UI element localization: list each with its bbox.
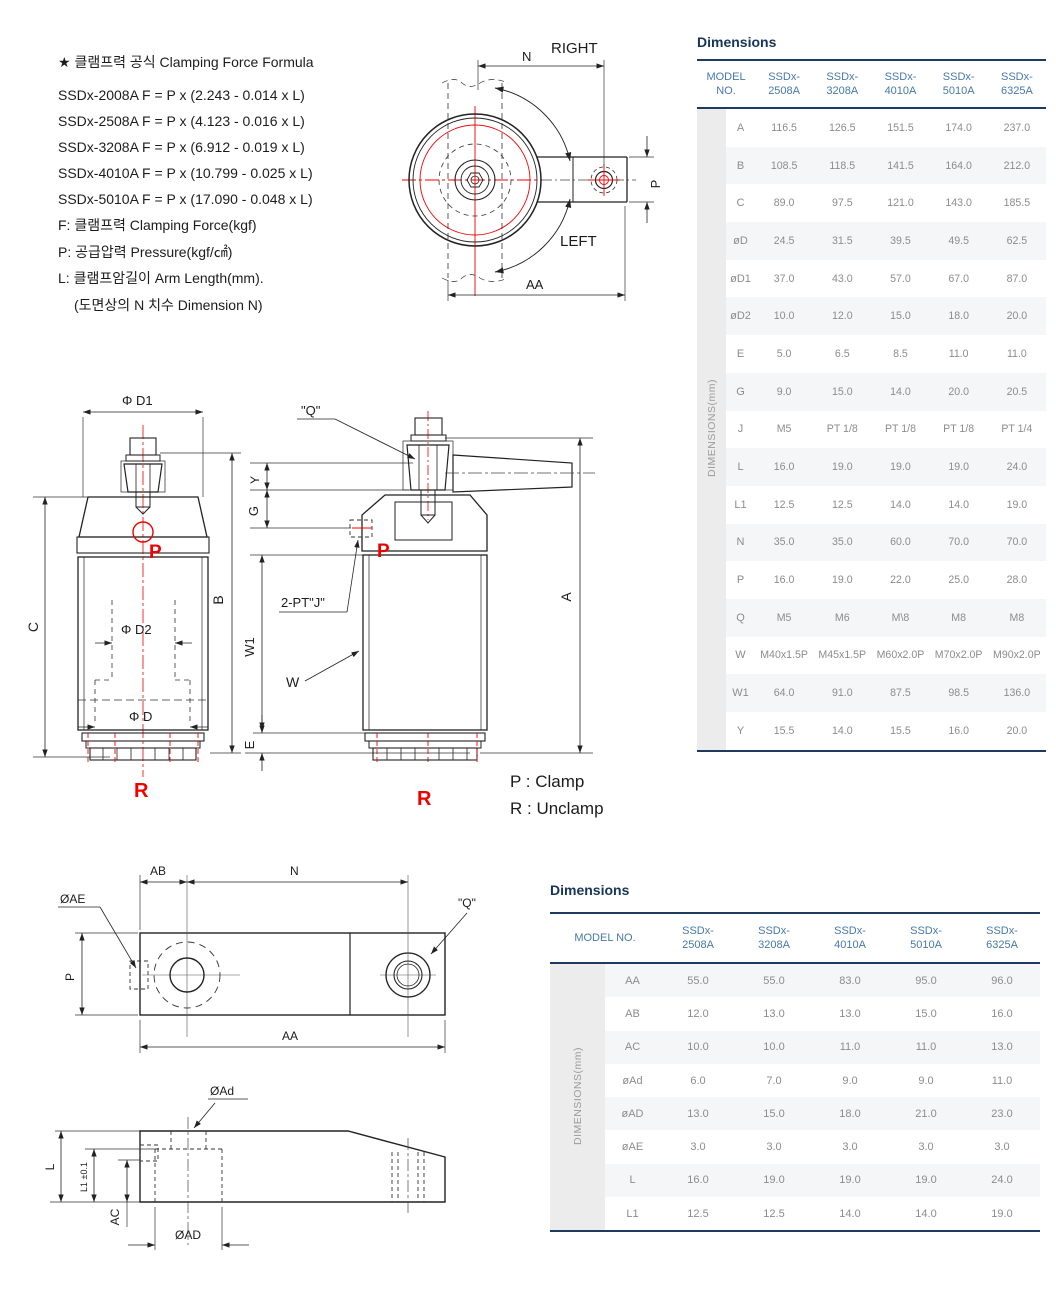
dim-value: 16.0 xyxy=(964,997,1040,1030)
dimensions-table: MODEL NO. SSDx-2508ASSDx-3208ASSDx-4010A… xyxy=(697,59,1046,752)
dim-value: 12.5 xyxy=(736,1197,812,1231)
table-row: øAd6.07.09.09.011.0 xyxy=(550,1064,1040,1097)
dim-row-label: øD xyxy=(726,222,755,260)
dim-value: 64.0 xyxy=(755,674,813,712)
dim-value: 8.5 xyxy=(871,335,929,373)
dim-label-a: A xyxy=(558,592,574,602)
dim-value: 24.0 xyxy=(964,1164,1040,1197)
dim-value: 57.0 xyxy=(871,260,929,298)
dim-value: 11.0 xyxy=(988,335,1046,373)
dim-value: 18.0 xyxy=(812,1097,888,1130)
dim-value: 11.0 xyxy=(812,1031,888,1064)
dim-row-label: G xyxy=(726,373,755,411)
dim-value: 91.0 xyxy=(813,674,871,712)
dim-label-n: N xyxy=(522,49,531,64)
label-right: RIGHT xyxy=(551,40,598,57)
dim-value: 108.5 xyxy=(755,147,813,185)
dim-label-l1: L1 ±0.1 xyxy=(79,1162,89,1192)
table-row: øAE3.03.03.03.03.0 xyxy=(550,1130,1040,1163)
port-label-p2: P xyxy=(377,541,390,562)
dim-value: 185.5 xyxy=(988,184,1046,222)
dim-value: 12.5 xyxy=(813,486,871,524)
table-row: øD24.531.539.549.562.5 xyxy=(697,222,1046,260)
dim-value: 62.5 xyxy=(988,222,1046,260)
table-row: N35.035.060.070.070.0 xyxy=(697,524,1046,562)
port-label-r: R xyxy=(134,780,149,802)
formula-line: SSDx-3208A F = P x (6.912 - 0.019 x L) xyxy=(58,134,408,160)
table-row: AC10.010.011.011.013.0 xyxy=(550,1031,1040,1064)
dim-value: 9.0 xyxy=(755,373,813,411)
dim-value: 87.0 xyxy=(988,260,1046,298)
dim-value: 55.0 xyxy=(736,963,812,997)
dim-value: 35.0 xyxy=(813,524,871,562)
dim-value: 13.0 xyxy=(812,997,888,1030)
table-row: W164.091.087.598.5136.0 xyxy=(697,674,1046,712)
dim-row-label: AA xyxy=(605,963,660,997)
catalog-page: ★ 클램프력 공식 Clamping Force Formula SSDx-20… xyxy=(0,0,1056,1300)
dim-value: 19.0 xyxy=(888,1164,964,1197)
dim-value: M60x2.0P xyxy=(871,637,929,675)
dim-value: 5.0 xyxy=(755,335,813,373)
dim-value: 14.0 xyxy=(888,1197,964,1231)
dim-row-label: L xyxy=(605,1164,660,1197)
dim-value: 118.5 xyxy=(813,147,871,185)
dim-value: 12.5 xyxy=(755,486,813,524)
dim-value: 15.0 xyxy=(871,297,929,335)
dim-value: 20.0 xyxy=(988,712,1046,751)
front-views-drawing: Φ D1 P Φ D2 Φ D xyxy=(25,385,640,830)
dim-label-phi-d1: Φ D1 xyxy=(122,393,153,408)
dim-value: 28.0 xyxy=(988,561,1046,599)
dim-value: 10.0 xyxy=(755,297,813,335)
dim-value: 95.0 xyxy=(888,963,964,997)
dim-value: 9.0 xyxy=(812,1064,888,1097)
model-header: SSDx-5010A xyxy=(930,60,988,108)
dim-label-aa: AA xyxy=(526,277,544,292)
dim-row-label: øAE xyxy=(605,1130,660,1163)
dim-value: M\8 xyxy=(871,599,929,637)
dim-value: 49.5 xyxy=(930,222,988,260)
dim-value: PT 1/8 xyxy=(871,411,929,449)
dim-value: 143.0 xyxy=(930,184,988,222)
dim-value: 11.0 xyxy=(888,1031,964,1064)
table-header-row: MODEL NO. SSDx-2508ASSDx-3208ASSDx-4010A… xyxy=(697,60,1046,108)
dim-value: 19.0 xyxy=(736,1164,812,1197)
dim-value: PT 1/4 xyxy=(988,411,1046,449)
table-row: øD137.043.057.067.087.0 xyxy=(697,260,1046,298)
dim-value: 23.0 xyxy=(964,1097,1040,1130)
dim-row-label: C xyxy=(726,184,755,222)
dim-value: 15.0 xyxy=(736,1097,812,1130)
dim-value: M5 xyxy=(755,411,813,449)
dim-value: 13.0 xyxy=(964,1031,1040,1064)
dim-value: 43.0 xyxy=(813,260,871,298)
table-title: Dimensions xyxy=(550,882,1040,898)
table-row: Y15.514.015.516.020.0 xyxy=(697,712,1046,751)
dim-value: M8 xyxy=(988,599,1046,637)
model-header: SSDx-2508A xyxy=(660,913,736,963)
clamp-arm-outline xyxy=(453,455,572,492)
dim-row-label: P xyxy=(726,561,755,599)
table-row: QM5M6M\8M8M8 xyxy=(697,599,1046,637)
dim-value: 14.0 xyxy=(871,486,929,524)
arm-views-drawing: AB N ØAE P AA "Q" ØAd xyxy=(30,855,530,1300)
dim-value: 19.0 xyxy=(964,1197,1040,1231)
dim-value: 7.0 xyxy=(736,1064,812,1097)
dimensions-table-2: Dimensions MODEL NO. SSDx-2508ASSDx-3208… xyxy=(550,882,1040,1232)
dim-value: 16.0 xyxy=(660,1164,736,1197)
table-row: L112.512.514.014.019.0 xyxy=(697,486,1046,524)
model-header: SSDx-6325A xyxy=(988,60,1046,108)
dim-row-label: W1 xyxy=(726,674,755,712)
formula-title: ★ 클램프력 공식 Clamping Force Formula xyxy=(58,52,408,72)
dim-value: 20.0 xyxy=(930,373,988,411)
dim-value: 87.5 xyxy=(871,674,929,712)
formula-note: F: 클램프력 Clamping Force(kgf) xyxy=(58,212,408,239)
model-header: SSDx-4010A xyxy=(871,60,929,108)
dim-row-label: J xyxy=(726,411,755,449)
legend-clamp: P : Clamp xyxy=(510,772,584,791)
dim-value: 116.5 xyxy=(755,108,813,147)
model-header: SSDx-3208A xyxy=(813,60,871,108)
dim-value: 151.5 xyxy=(871,108,929,147)
dim-row-label: B xyxy=(726,147,755,185)
dim-value: 15.0 xyxy=(888,997,964,1030)
dim-row-label: E xyxy=(726,335,755,373)
model-header: SSDx-5010A xyxy=(888,913,964,963)
dim-label-ad: ØAD xyxy=(175,1228,201,1242)
dim-label-p2: P xyxy=(63,973,77,981)
dim-value: 19.0 xyxy=(813,448,871,486)
dim-value: M6 xyxy=(813,599,871,637)
dim-value: 19.0 xyxy=(871,448,929,486)
dim-value: 39.5 xyxy=(871,222,929,260)
dim-row-label: L xyxy=(726,448,755,486)
dim-value: 10.0 xyxy=(736,1031,812,1064)
dim-value: 18.0 xyxy=(930,297,988,335)
dim-value: 12.0 xyxy=(813,297,871,335)
dim-value: 11.0 xyxy=(930,335,988,373)
table-row: JM5PT 1/8PT 1/8PT 1/8PT 1/4 xyxy=(697,411,1046,449)
table-row: L16.019.019.019.024.0 xyxy=(550,1164,1040,1197)
dim-value: 3.0 xyxy=(964,1130,1040,1163)
dim-value: 13.0 xyxy=(660,1097,736,1130)
clamping-force-formula-block: ★ 클램프력 공식 Clamping Force Formula SSDx-20… xyxy=(58,52,408,318)
dim-value: M45x1.5P xyxy=(813,637,871,675)
dim-value: 126.5 xyxy=(813,108,871,147)
top-view-drawing: N RIGHT AA P LEFT xyxy=(400,28,690,328)
dim-label-ab: AB xyxy=(150,864,166,878)
dim-value: 16.0 xyxy=(755,448,813,486)
dim-value: 15.5 xyxy=(871,712,929,751)
dim-label-aa2: AA xyxy=(282,1029,298,1043)
formula-note: P: 공급압력 Pressure(kgf/㎠) xyxy=(58,239,408,266)
dim-value: 21.0 xyxy=(888,1097,964,1130)
dim-row-label: øAd xyxy=(605,1064,660,1097)
dim-label-phi-d2: Φ D2 xyxy=(121,622,152,637)
dim-value: 70.0 xyxy=(930,524,988,562)
dim-row-label: L1 xyxy=(605,1197,660,1231)
dim-value: 3.0 xyxy=(736,1130,812,1163)
table-title: Dimensions xyxy=(697,34,1046,50)
dim-value: 136.0 xyxy=(988,674,1046,712)
table-row: DIMENSIONS(mm)AA55.055.083.095.096.0 xyxy=(550,963,1040,997)
table-row: L16.019.019.019.024.0 xyxy=(697,448,1046,486)
dim-value: PT 1/8 xyxy=(930,411,988,449)
dim-value: 60.0 xyxy=(871,524,929,562)
dim-value: 19.0 xyxy=(988,486,1046,524)
units-side-label: DIMENSIONS(mm) xyxy=(697,108,726,751)
model-header: SSDx-3208A xyxy=(736,913,812,963)
dim-value: 6.0 xyxy=(660,1064,736,1097)
dim-value: 121.0 xyxy=(871,184,929,222)
dim-row-label: Q xyxy=(726,599,755,637)
legend-unclamp: R : Unclamp xyxy=(510,799,604,818)
formula-line: SSDx-2008A F = P x (2.243 - 0.014 x L) xyxy=(58,82,408,108)
dim-value: 67.0 xyxy=(930,260,988,298)
formula-note: (도면상의 N 치수 Dimension N) xyxy=(58,292,408,319)
dim-value: 16.0 xyxy=(755,561,813,599)
dimensions-table: MODEL NO. SSDx-2508ASSDx-3208ASSDx-4010A… xyxy=(550,912,1040,1232)
dim-value: M90x2.0P xyxy=(988,637,1046,675)
model-header: SSDx-6325A xyxy=(964,913,1040,963)
dim-value: 96.0 xyxy=(964,963,1040,997)
table-row: øD210.012.015.018.020.0 xyxy=(697,297,1046,335)
table-row: P16.019.022.025.028.0 xyxy=(697,561,1046,599)
dim-value: 19.0 xyxy=(813,561,871,599)
dim-value: 3.0 xyxy=(812,1130,888,1163)
dim-value: 237.0 xyxy=(988,108,1046,147)
dim-label-n2: N xyxy=(290,864,299,878)
dim-row-label: øAD xyxy=(605,1097,660,1130)
dim-label-pt-j: 2-PT"J" xyxy=(281,595,325,610)
dim-value: 164.0 xyxy=(930,147,988,185)
label-left: LEFT xyxy=(560,233,597,250)
dim-label-w: W xyxy=(286,674,300,690)
dim-value: 6.5 xyxy=(813,335,871,373)
arm-top-outline xyxy=(140,933,445,1015)
table-header-row: MODEL NO. SSDx-2508ASSDx-3208ASSDx-4010A… xyxy=(550,913,1040,963)
dim-label-q: "Q" xyxy=(301,403,321,418)
dim-label-q2: "Q" xyxy=(458,896,476,910)
dim-label-b: B xyxy=(210,595,226,604)
port-label-r2: R xyxy=(417,788,432,810)
dim-value: M5 xyxy=(755,599,813,637)
dim-value: 20.0 xyxy=(988,297,1046,335)
dim-value: M70x2.0P xyxy=(930,637,988,675)
table-row: WM40x1.5PM45x1.5PM60x2.0PM70x2.0PM90x2.0… xyxy=(697,637,1046,675)
dim-value: 16.0 xyxy=(930,712,988,751)
table-row: G9.015.014.020.020.5 xyxy=(697,373,1046,411)
dim-value: 3.0 xyxy=(660,1130,736,1163)
dim-value: 141.5 xyxy=(871,147,929,185)
table-row: C89.097.5121.0143.0185.5 xyxy=(697,184,1046,222)
dim-value: 20.5 xyxy=(988,373,1046,411)
dim-value: 3.0 xyxy=(888,1130,964,1163)
dim-value: 25.0 xyxy=(930,561,988,599)
dim-label-e: E xyxy=(242,740,257,749)
model-no-header: MODEL NO. xyxy=(550,913,660,963)
dim-value: M40x1.5P xyxy=(755,637,813,675)
model-header: SSDx-4010A xyxy=(812,913,888,963)
dim-value: 12.5 xyxy=(660,1197,736,1231)
dim-value: PT 1/8 xyxy=(813,411,871,449)
dim-value: 55.0 xyxy=(660,963,736,997)
dim-row-label: A xyxy=(726,108,755,147)
dim-label-ac: AC xyxy=(108,1208,122,1225)
dim-value: 212.0 xyxy=(988,147,1046,185)
table-row: AB12.013.013.015.016.0 xyxy=(550,997,1040,1030)
dimensions-table-1: Dimensions MODEL NO. SSDx-2508ASSDx-3208… xyxy=(697,34,1046,752)
dim-value: 89.0 xyxy=(755,184,813,222)
dim-value: 15.0 xyxy=(813,373,871,411)
dim-value: 14.0 xyxy=(930,486,988,524)
dim-label-ad-small: ØAd xyxy=(210,1084,234,1098)
dim-value: 15.5 xyxy=(755,712,813,751)
port-label-p: P xyxy=(149,542,162,563)
dim-value: 19.0 xyxy=(812,1164,888,1197)
dim-label-g: G xyxy=(246,506,261,516)
units-side-label: DIMENSIONS(mm) xyxy=(550,963,605,1231)
dim-label-ae: ØAE xyxy=(60,892,85,906)
formula-line: SSDx-4010A F = P x (10.799 - 0.025 x L) xyxy=(58,160,408,186)
table-row: L112.512.514.014.019.0 xyxy=(550,1197,1040,1231)
dim-value: 31.5 xyxy=(813,222,871,260)
dim-label-y: Y xyxy=(248,476,262,484)
dim-row-label: N xyxy=(726,524,755,562)
arm-side-outline xyxy=(140,1131,445,1202)
dim-value: 9.0 xyxy=(888,1064,964,1097)
dim-value: 174.0 xyxy=(930,108,988,147)
formula-line: SSDx-5010A F = P x (17.090 - 0.048 x L) xyxy=(58,186,408,212)
model-no-header: MODEL NO. xyxy=(697,60,755,108)
table-row: B108.5118.5141.5164.0212.0 xyxy=(697,147,1046,185)
dim-value: 24.0 xyxy=(988,448,1046,486)
dim-value: 11.0 xyxy=(964,1064,1040,1097)
dim-value: 22.0 xyxy=(871,561,929,599)
dim-value: 14.0 xyxy=(871,373,929,411)
table-row: E5.06.58.511.011.0 xyxy=(697,335,1046,373)
table-row: øAD13.015.018.021.023.0 xyxy=(550,1097,1040,1130)
dim-value: M8 xyxy=(930,599,988,637)
dim-row-label: AC xyxy=(605,1031,660,1064)
dim-row-label: AB xyxy=(605,997,660,1030)
dim-row-label: W xyxy=(726,637,755,675)
dim-value: 14.0 xyxy=(813,712,871,751)
dim-label-p: P xyxy=(648,180,663,189)
dim-value: 14.0 xyxy=(812,1197,888,1231)
model-header: SSDx-2508A xyxy=(755,60,813,108)
dim-value: 70.0 xyxy=(988,524,1046,562)
dim-value: 37.0 xyxy=(755,260,813,298)
dim-row-label: øD1 xyxy=(726,260,755,298)
dim-value: 83.0 xyxy=(812,963,888,997)
dim-value: 19.0 xyxy=(930,448,988,486)
dim-row-label: L1 xyxy=(726,486,755,524)
formula-line: SSDx-2508A F = P x (4.123 - 0.016 x L) xyxy=(58,108,408,134)
table-row: DIMENSIONS(mm)A116.5126.5151.5174.0237.0 xyxy=(697,108,1046,147)
formula-note: L: 클램프암길이 Arm Length(mm). xyxy=(58,265,408,292)
dim-value: 24.5 xyxy=(755,222,813,260)
dim-label-w1: W1 xyxy=(242,637,257,657)
dim-value: 97.5 xyxy=(813,184,871,222)
dim-value: 35.0 xyxy=(755,524,813,562)
dim-label-phi-d: Φ D xyxy=(129,709,152,724)
dim-value: 13.0 xyxy=(736,997,812,1030)
dim-label-l: L xyxy=(43,1163,57,1170)
dim-value: 98.5 xyxy=(930,674,988,712)
dim-row-label: øD2 xyxy=(726,297,755,335)
dim-value: 12.0 xyxy=(660,997,736,1030)
dim-value: 10.0 xyxy=(660,1031,736,1064)
dim-label-c: C xyxy=(25,622,41,632)
dim-row-label: Y xyxy=(726,712,755,751)
